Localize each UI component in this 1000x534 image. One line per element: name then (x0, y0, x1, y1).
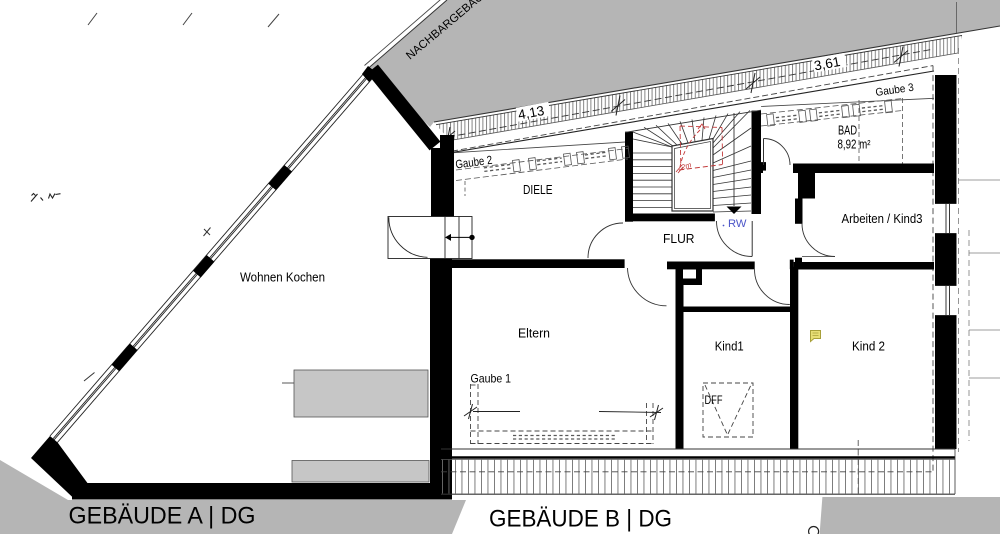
svg-text:Wohnen Kochen: Wohnen Kochen (240, 271, 325, 285)
svg-text:GEBÄUDE A | DG: GEBÄUDE A | DG (69, 503, 256, 530)
svg-text:GEBÄUDE B | DG: GEBÄUDE B | DG (489, 506, 672, 533)
svg-text:Kind 2: Kind 2 (852, 340, 885, 354)
svg-text:FLUR: FLUR (663, 232, 695, 246)
svg-text:RW: RW (728, 218, 747, 230)
svg-text:Gaube 1: Gaube 1 (471, 372, 512, 386)
svg-text:Kind1: Kind1 (715, 340, 744, 354)
svg-text:DFF: DFF (705, 393, 723, 407)
svg-text:8,92 m²: 8,92 m² (838, 136, 871, 151)
svg-text:DIELE: DIELE (523, 182, 553, 197)
svg-text:Eltern: Eltern (518, 327, 550, 341)
svg-text:Arbeiten / Kind3: Arbeiten / Kind3 (842, 212, 923, 226)
